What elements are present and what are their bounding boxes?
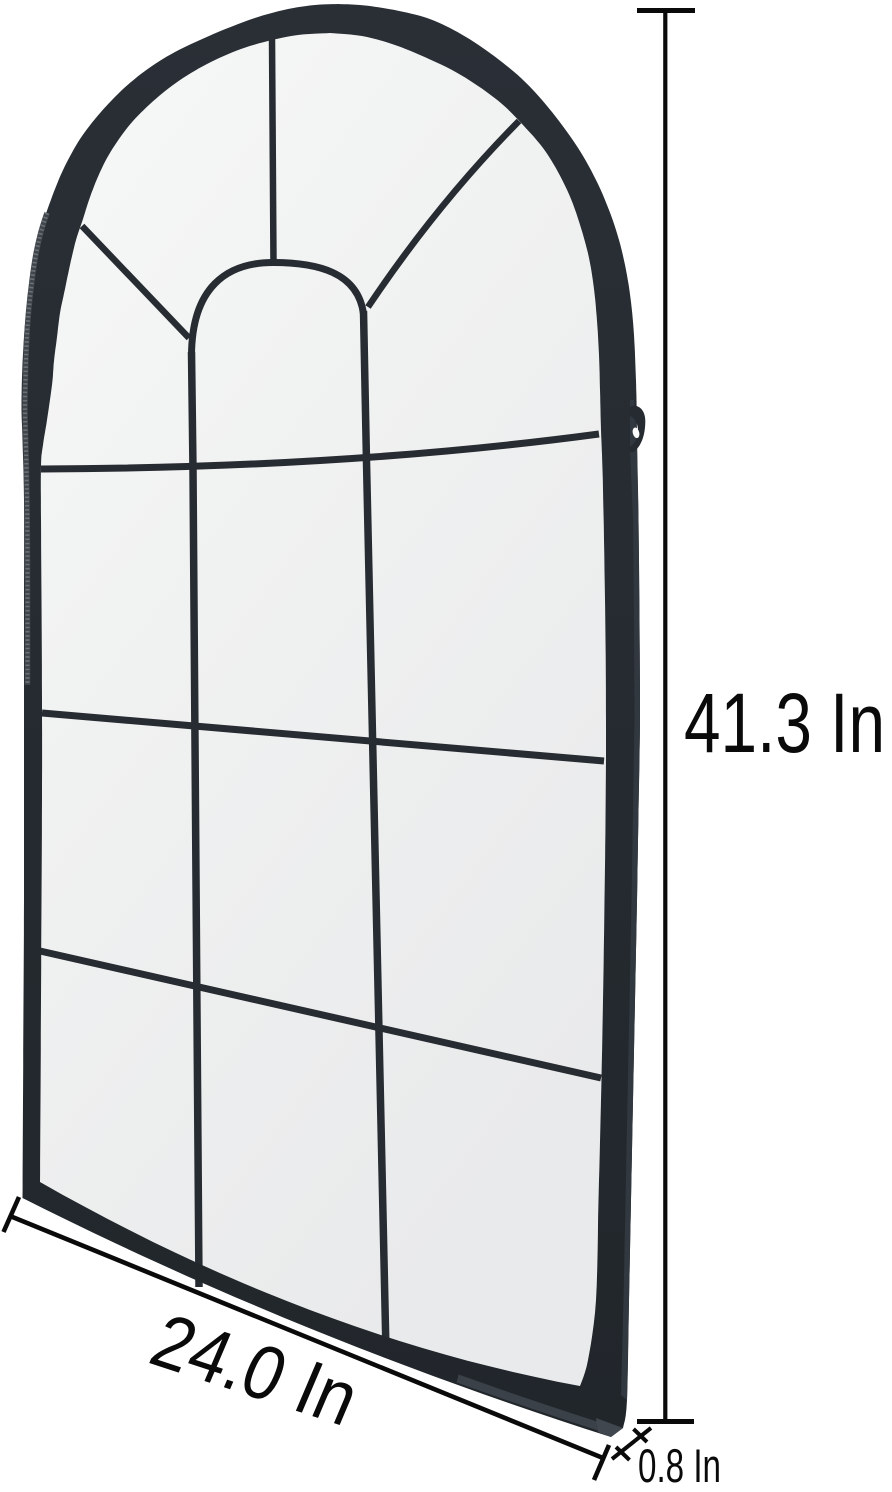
svg-text:41.3 In: 41.3 In [684,676,885,770]
svg-text:0.8 In: 0.8 In [638,1439,721,1492]
